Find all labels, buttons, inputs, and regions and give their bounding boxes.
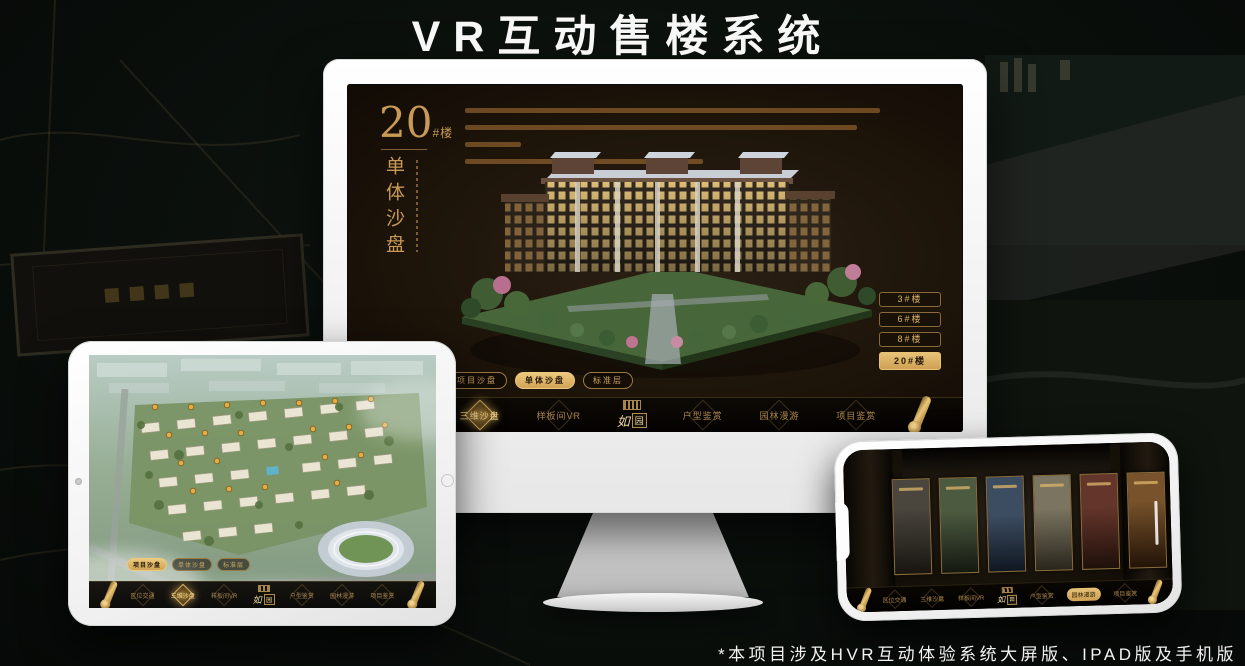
- logo-seal: 园: [632, 413, 647, 428]
- subtab-single-sandbox[interactable]: 单体沙盘: [172, 558, 212, 571]
- decorative-english-caption: [416, 160, 418, 252]
- nav-item-showroom-vr[interactable]: 样板间VR: [210, 589, 238, 602]
- scroll-menu-icon[interactable]: [1146, 578, 1165, 606]
- logo-char: 如: [253, 593, 262, 606]
- building-title-block: 20#楼 单体沙盘: [379, 102, 453, 260]
- subtab-standard-floor[interactable]: 标准层: [217, 558, 250, 571]
- logo-emblem-icon: [623, 400, 641, 410]
- logo-seal: 园: [264, 594, 275, 605]
- subtab-project-sandbox[interactable]: 项目沙盘: [127, 558, 167, 571]
- nav-item-garden-roam[interactable]: 园林漫游: [329, 589, 355, 602]
- subtab-single-sandbox[interactable]: 单体沙盘: [515, 372, 575, 389]
- nav-item-3d-sandbox[interactable]: 三维沙盘: [170, 589, 196, 602]
- nav-item-showroom-vr[interactable]: 样板间VR: [535, 407, 582, 424]
- nav-item-project-gallery[interactable]: 项目鉴赏: [369, 589, 395, 602]
- nav-item-project-gallery[interactable]: 项目鉴赏: [835, 407, 877, 424]
- scroll-menu-icon[interactable]: [405, 579, 427, 608]
- scroll-menu-icon[interactable]: [855, 586, 874, 613]
- building-subtitle: 单体沙盘: [381, 156, 408, 260]
- phone-notch: [835, 502, 850, 560]
- subtab-project-sandbox[interactable]: 项目沙盘: [447, 372, 507, 389]
- page-title: VR互动售楼系统: [0, 2, 1245, 64]
- logo-char: 如: [617, 411, 630, 430]
- nav-item-location-traffic[interactable]: 区位交通: [881, 592, 907, 606]
- footnote: *本项目涉及HVR互动体验系统大屏版、IPAD版及手机版: [718, 640, 1237, 665]
- nav-item-location-traffic[interactable]: 区位交通: [130, 589, 156, 602]
- floor-button-3[interactable]: 3#楼: [879, 292, 941, 307]
- tablet-screen: 项目沙盘 单体沙盘 标准层 区位交通 三维沙盘 样板间VR 如园 户型鉴赏 园林…: [89, 355, 436, 608]
- subtab-standard-floor[interactable]: 标准层: [583, 372, 633, 389]
- monitor-stand-base: [543, 593, 763, 612]
- sandbox-subtabs: 项目沙盘 单体沙盘 标准层: [447, 372, 633, 389]
- gallery-card-building-day[interactable]: [1033, 474, 1074, 571]
- phone-screen: 区位交通 三维沙盘 样板间VR 如园 户型鉴赏 园林漫游 项目鉴赏: [843, 441, 1173, 612]
- phone-bottom-nav: 区位交通 三维沙盘 样板间VR 如园 户型鉴赏 园林漫游 项目鉴赏: [847, 578, 1174, 612]
- nav-item-unit-types[interactable]: 户型鉴赏: [289, 589, 315, 602]
- tablet-sandbox-subtabs: 项目沙盘 单体沙盘 标准层: [127, 558, 250, 571]
- scroll-menu-icon[interactable]: [98, 579, 120, 608]
- nav-item-garden-roam[interactable]: 园林漫游: [758, 407, 800, 424]
- logo-seal: 园: [1007, 594, 1017, 604]
- nav-item-3d-sandbox[interactable]: 三维沙盘: [919, 591, 945, 605]
- floor-button-6[interactable]: 6#楼: [879, 312, 941, 327]
- nav-item-showroom-vr[interactable]: 样板间VR: [957, 590, 986, 604]
- gallery-card-interior[interactable]: [1127, 472, 1168, 569]
- tablet-home-button[interactable]: [441, 474, 454, 487]
- building-3d-render[interactable]: [447, 142, 887, 392]
- text-line: [465, 108, 880, 113]
- nav-item-unit-types[interactable]: 户型鉴赏: [1029, 588, 1055, 602]
- nav-item-3d-sandbox[interactable]: 三维沙盘: [459, 407, 501, 424]
- tablet-camera-icon: [75, 478, 82, 485]
- tablet-bottom-nav: 区位交通 三维沙盘 样板间VR 如园 户型鉴赏 园林漫游 项目鉴赏: [89, 581, 436, 608]
- gallery-card-facade[interactable]: [1080, 473, 1121, 570]
- floor-button-20[interactable]: 20#楼: [879, 352, 941, 370]
- floor-button-8[interactable]: 8#楼: [879, 332, 941, 347]
- scroll-menu-icon[interactable]: [905, 393, 935, 432]
- nav-item-unit-types[interactable]: 户型鉴赏: [682, 407, 724, 424]
- logo-char: 如: [997, 594, 1005, 605]
- floor-selector: 3#楼 6#楼 8#楼 20#楼: [879, 292, 941, 375]
- ruyuan-logo: 如园: [253, 585, 275, 606]
- divider: [381, 149, 427, 150]
- scene-gallery: [892, 472, 1168, 576]
- text-line: [465, 125, 857, 130]
- gallery-card-courtyard[interactable]: [939, 477, 980, 574]
- gallery-card-building-dusk[interactable]: [986, 476, 1027, 573]
- logo-emblem-icon: [1001, 587, 1012, 593]
- ruyuan-logo: 如园: [617, 400, 647, 430]
- building-number: 20: [379, 98, 432, 147]
- logo-emblem-icon: [258, 585, 270, 592]
- phone-frame: 区位交通 三维沙盘 样板间VR 如园 户型鉴赏 园林漫游 项目鉴赏: [834, 432, 1183, 622]
- gallery-card-entrance[interactable]: [892, 478, 933, 575]
- nav-item-garden-roam[interactable]: 园林漫游: [1066, 587, 1100, 601]
- ruyuan-logo: 如园: [997, 587, 1017, 606]
- building-number-unit: #楼: [432, 126, 453, 140]
- nav-item-project-gallery[interactable]: 项目鉴赏: [1112, 586, 1138, 600]
